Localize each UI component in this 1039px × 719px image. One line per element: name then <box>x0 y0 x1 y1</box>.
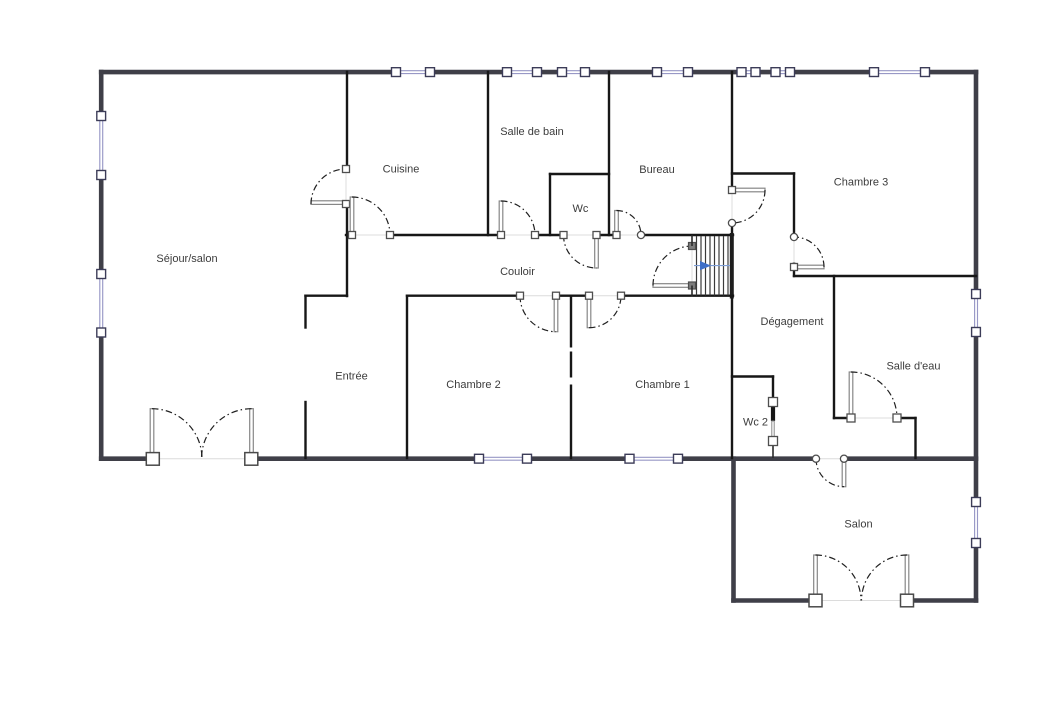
svg-text:Couloir: Couloir <box>500 266 535 278</box>
svg-text:Bureau: Bureau <box>639 164 674 176</box>
svg-text:Chambre 1: Chambre 1 <box>635 379 689 391</box>
svg-text:Salon: Salon <box>844 519 872 531</box>
svg-text:Entrée: Entrée <box>335 371 367 383</box>
svg-text:Dégagement: Dégagement <box>761 316 824 328</box>
svg-text:Salle d'eau: Salle d'eau <box>886 361 940 373</box>
svg-text:Chambre 3: Chambre 3 <box>834 177 888 189</box>
svg-text:Séjour/salon: Séjour/salon <box>156 253 217 265</box>
svg-text:Cuisine: Cuisine <box>383 164 420 176</box>
svg-text:Wc: Wc <box>573 203 589 215</box>
svg-text:Chambre 2: Chambre 2 <box>446 379 500 391</box>
svg-text:Wc 2: Wc 2 <box>743 417 768 429</box>
svg-text:Salle de bain: Salle de bain <box>500 126 564 138</box>
